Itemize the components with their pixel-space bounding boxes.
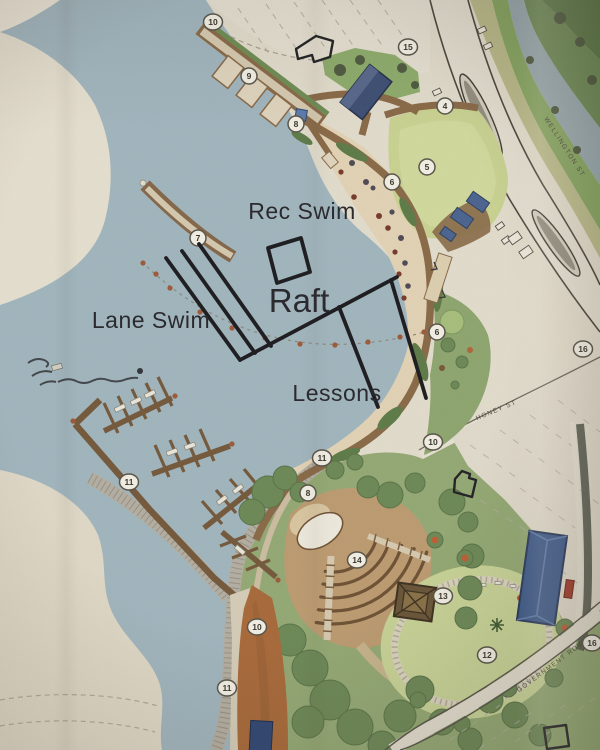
site-plan-map: WELLINGTON ST HONEY ST GOVERNMENT ROW 10… <box>0 0 600 750</box>
photo-grain <box>0 0 600 750</box>
map-photo: WELLINGTON ST HONEY ST GOVERNMENT ROW 10… <box>0 0 600 750</box>
